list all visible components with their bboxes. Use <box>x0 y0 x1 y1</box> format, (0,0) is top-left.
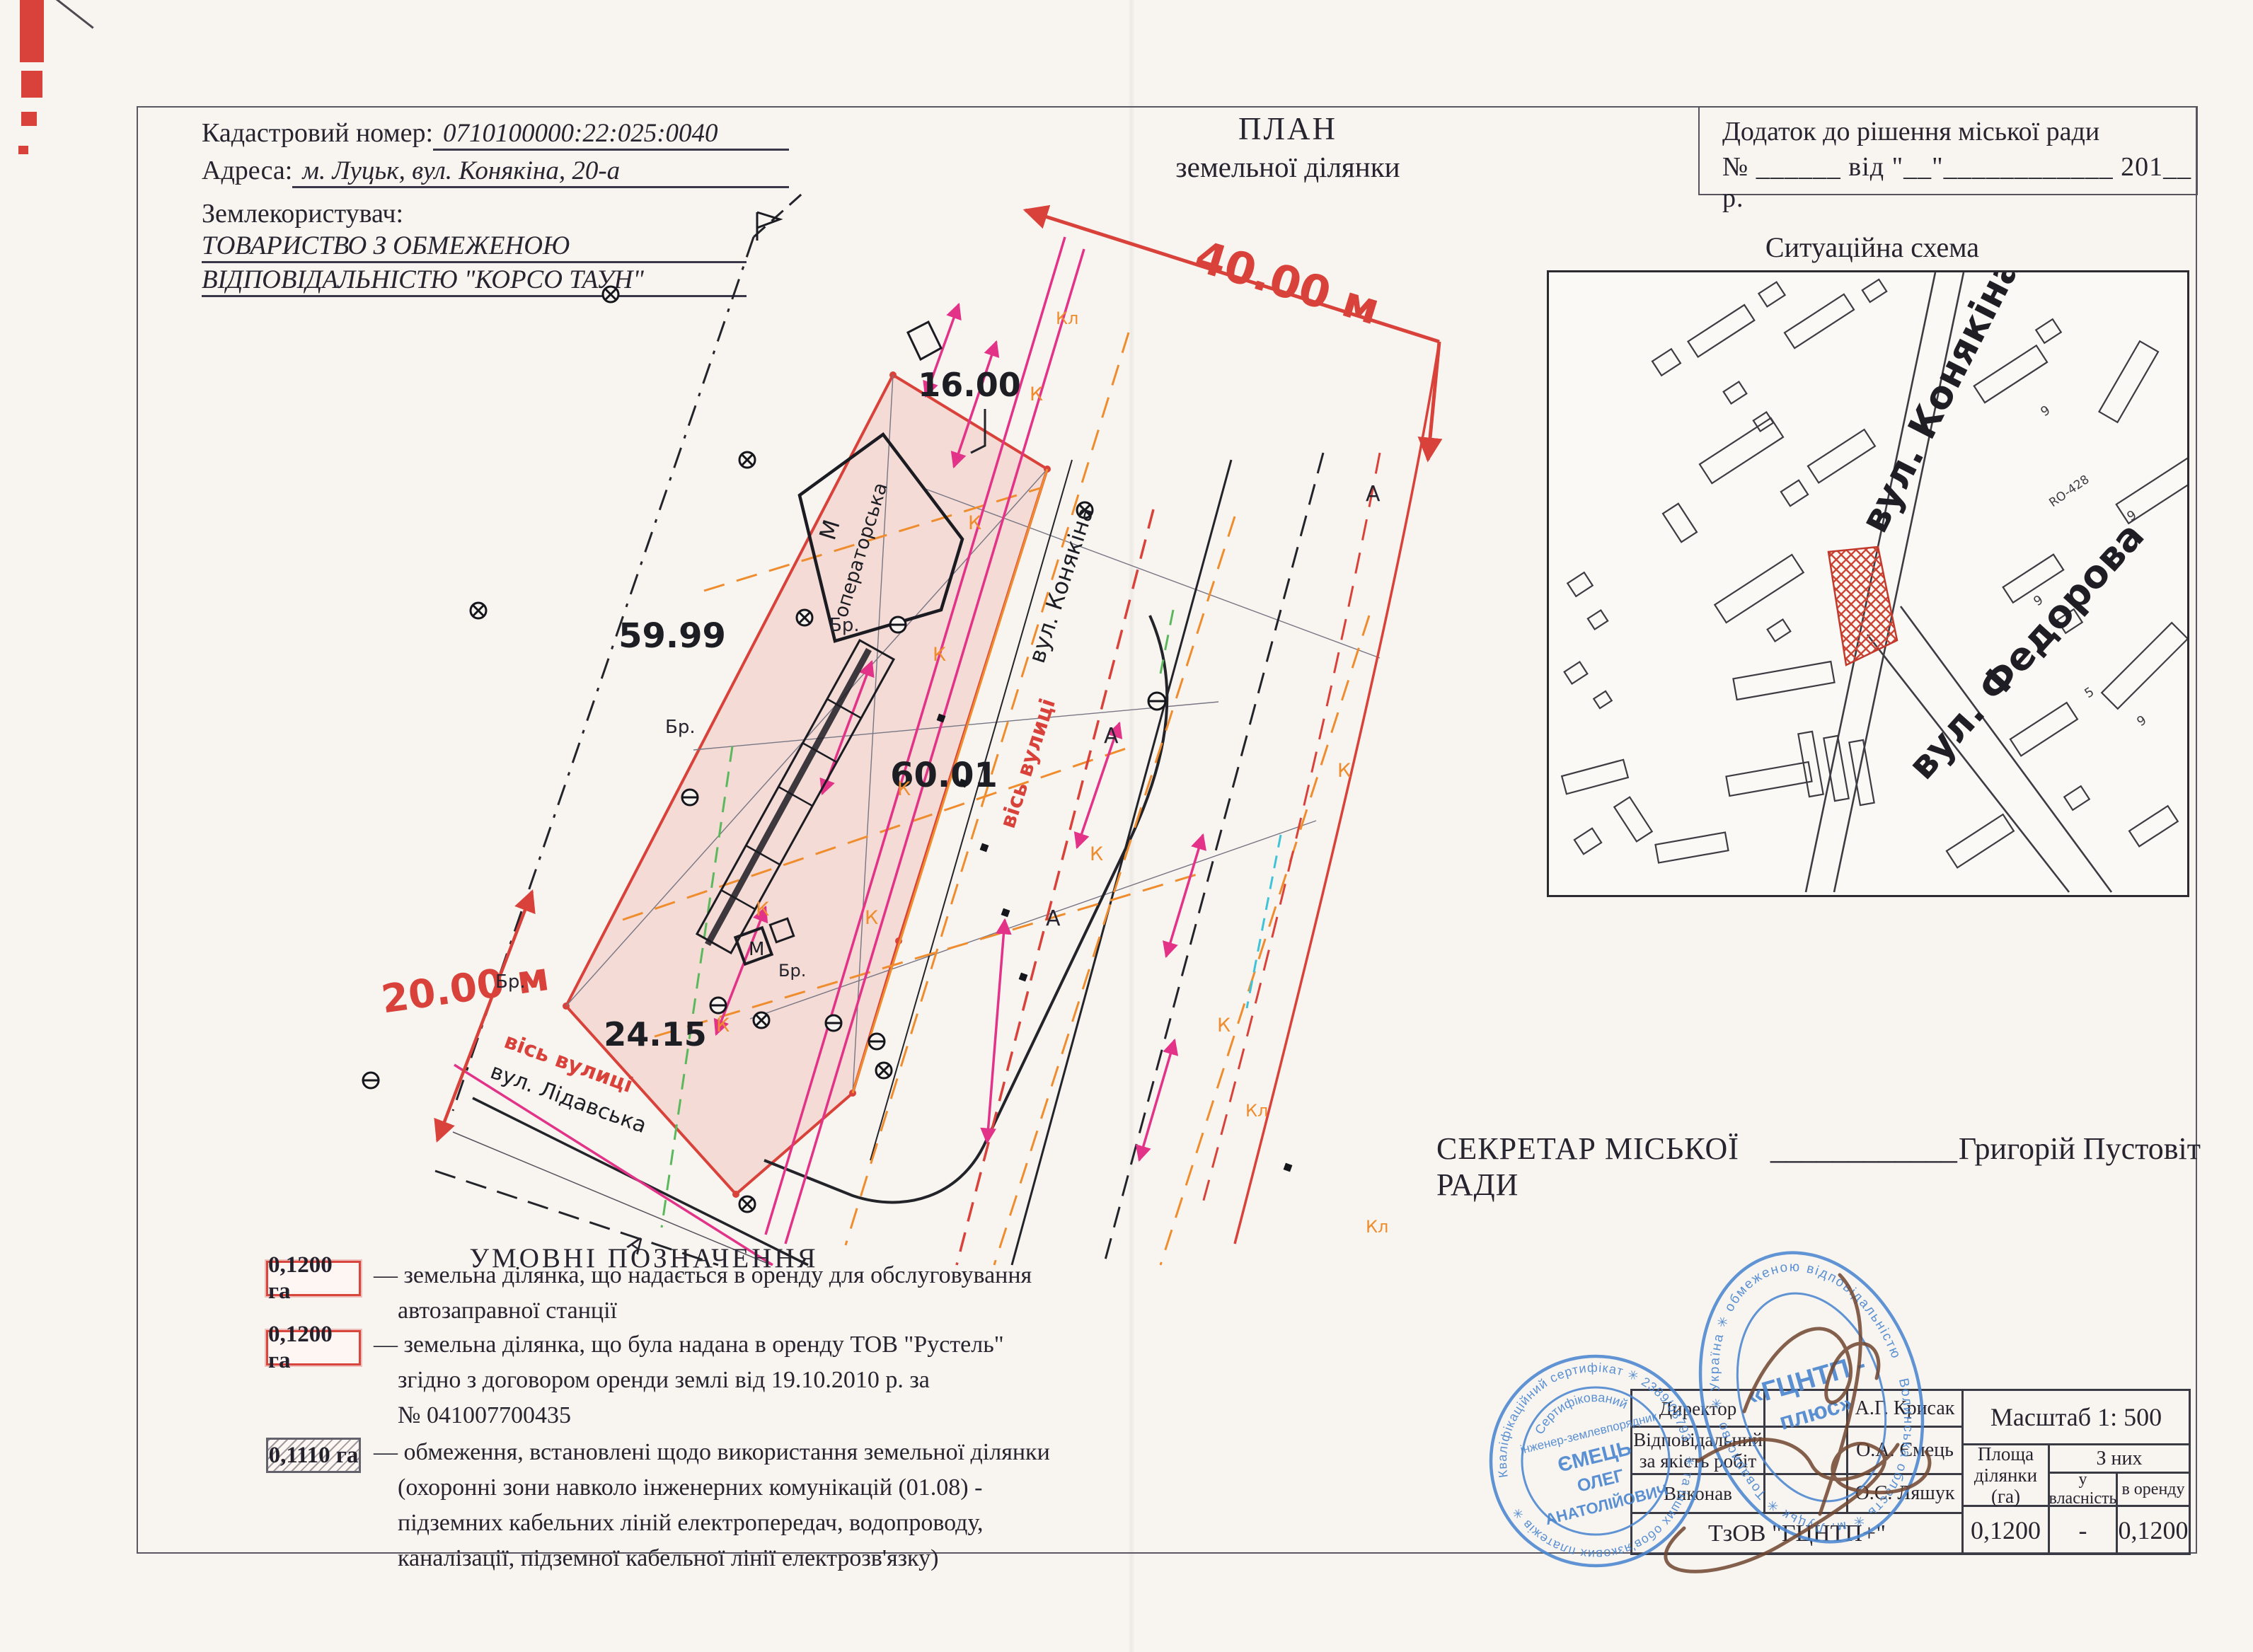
svg-text:К: К <box>716 1015 730 1036</box>
table-org-cell: ТзОВ "ГЦНТП+" <box>1632 1514 1964 1553</box>
legend-item-1-text: — земельна ділянка, що надається в оренд… <box>374 1258 1032 1329</box>
legend-swatch-rustel: 0,1200 га <box>266 1330 361 1365</box>
dimension-40m: 40.00 м <box>1025 210 1439 460</box>
address-line: Адреса: м. Луцьк, вул. Конякіна, 20-а <box>202 155 789 188</box>
svg-text:К: К <box>756 899 769 920</box>
svg-text:К: К <box>1217 1015 1231 1036</box>
svg-text:К: К <box>968 512 981 534</box>
svg-text:К: К <box>1030 383 1043 405</box>
legend-item-2-line-2: згідно з договором оренди землі від 19.1… <box>398 1363 1004 1398</box>
table-row-quality-name: О.А. Ємець <box>1848 1428 1964 1475</box>
legend-item-3-line-3: підземних кабельних ліній електропередач… <box>398 1506 1050 1541</box>
legend-swatch-lease: 0,1200 га <box>266 1261 361 1296</box>
cadastral-number-line: Кадастровий номер: 0710100000:22:025:004… <box>202 117 789 151</box>
scan-edge-mark <box>18 146 28 154</box>
legend-item-3-line-1: — обмеження, встановлені щодо використан… <box>374 1435 1050 1470</box>
page-title-line1: ПЛАН <box>1139 110 1436 147</box>
decision-line1: Додаток до рішення міської ради <box>1722 116 2099 147</box>
page-title-line2: земельної ділянки <box>1139 150 1436 184</box>
scanned-land-plan-document: Кадастровий номер: 0710100000:22:025:004… <box>0 0 2253 1652</box>
legend-item-3-line-4: каналізації, підземної кабельної лінії е… <box>398 1541 1050 1576</box>
svg-text:9: 9 <box>2134 712 2149 729</box>
plan-drawing: 40.00 м 20.00 м 16.00 59.99 60.01 24.15 <box>269 191 1500 1273</box>
br-label-2: Бр. <box>665 717 696 738</box>
svg-text:К: К <box>865 907 878 929</box>
secretary-name: Григорій Пустовіт <box>1959 1131 2201 1167</box>
secretary-underscore: ____________ <box>1770 1131 1957 1167</box>
table-ofthem-header: З них <box>2050 1445 2189 1474</box>
page-title: ПЛАН земельної ділянки <box>1139 110 1436 184</box>
legend-item-2-line-1: — земельна ділянка, що була надана в оре… <box>374 1327 1004 1363</box>
building-m-label-2: М <box>749 939 764 960</box>
legend-item-3-line-2: (охоронні зони навколо інженерних комуні… <box>398 1470 1050 1506</box>
scan-edge-mark <box>21 71 42 98</box>
legend-area-3: 0,1110 га <box>269 1443 359 1469</box>
br-label-1: Бр. <box>829 615 860 636</box>
situation-scheme-map: вул. Конякіна вул. Федорова RO-428 9 9 9… <box>1547 270 2189 897</box>
secretary-label: СЕКРЕТАР МІСЬКОЇ РАДИ <box>1436 1131 1752 1203</box>
a-label-3: А <box>1366 482 1381 507</box>
legend-area-1: 0,1200 га <box>268 1252 359 1305</box>
table-area-value: 0,1200 <box>1964 1507 2050 1553</box>
legend-swatch-restrictions: 0,1110 га <box>266 1438 361 1473</box>
table-signature-cell-1 <box>1765 1391 1848 1428</box>
legend-item-1-line-1: — земельна ділянка, що надається в оренд… <box>374 1258 1032 1293</box>
table-row-quality-label: Відповідальний за якість робіт <box>1632 1428 1765 1475</box>
table-ownership-header: у власність <box>2050 1474 2118 1507</box>
title-block-table: Директор А.Г. Крисак Відповідальний за я… <box>1630 1389 2191 1555</box>
svg-text:К: К <box>897 778 911 800</box>
a-label-1: А <box>1104 724 1119 749</box>
table-signature-cell-3 <box>1765 1475 1848 1514</box>
br-label-4: Бр. <box>495 971 526 993</box>
svg-text:Кл: Кл <box>1245 1101 1268 1121</box>
br-label-3: Бр. <box>778 961 806 981</box>
table-ownership-value: - <box>2050 1507 2118 1553</box>
street-konyakina-label: вул. Конякіна <box>1023 503 1099 666</box>
cadastral-number-value: 0710100000:22:025:0040 <box>433 118 789 151</box>
table-area-header: Площа ділянки (га) <box>1964 1445 2050 1507</box>
inset-ro-label: RO-428 <box>2046 473 2092 510</box>
target-parcel-hatched <box>1828 547 1897 665</box>
scan-fold-mark <box>49 0 93 29</box>
legend-area-2: 0,1200 га <box>268 1322 359 1374</box>
dim-16-label: 16.00 <box>918 366 1021 404</box>
a-label-2: А <box>1046 906 1061 931</box>
dimension-20m: 20.00 м <box>379 891 552 1140</box>
decision-line2: № ______ від "__"____________ 201__ р. <box>1722 151 2196 214</box>
table-row-executor-name: О.С. Ляшук <box>1848 1475 1964 1514</box>
svg-text:К: К <box>1337 760 1351 782</box>
scan-edge-mark <box>20 0 44 62</box>
table-rent-header: в оренду <box>2118 1474 2189 1507</box>
table-row-director-name: А.Г. Крисак <box>1848 1391 1964 1428</box>
cadastral-number-label: Кадастровий номер: <box>202 117 433 149</box>
table-rent-value: 0,1200 <box>2118 1507 2189 1553</box>
council-decision-box: Додаток до рішення міської ради № ______… <box>1698 106 2198 195</box>
legend-item-1-line-2: автозаправної станції <box>398 1293 1032 1329</box>
table-row-executor-label: Виконав <box>1632 1475 1765 1514</box>
svg-text:К: К <box>933 644 946 666</box>
situation-map-svg: вул. Конякіна вул. Федорова RO-428 9 9 9… <box>1549 272 2187 895</box>
svg-text:Кл: Кл <box>1056 308 1078 328</box>
table-scale-cell: Масштаб 1: 500 <box>1964 1391 2189 1445</box>
address-label: Адреса: <box>202 155 292 186</box>
dim-20m-label: 20.00 м <box>379 954 552 1022</box>
table-row-director-label: Директор <box>1632 1391 1765 1428</box>
dim-5999-label: 59.99 <box>618 616 726 656</box>
svg-text:9: 9 <box>2038 403 2053 420</box>
legend-item-2-text: — земельна ділянка, що була надана в оре… <box>374 1327 1004 1433</box>
table-signature-cell-2 <box>1765 1428 1848 1475</box>
inset-street-fedorova-label: вул. Федорова <box>1899 514 2153 788</box>
legend-item-3-text: — обмеження, встановлені щодо використан… <box>374 1435 1050 1576</box>
address-value: м. Луцьк, вул. Конякіна, 20-а <box>292 156 789 188</box>
secretary-signature-line: СЕКРЕТАР МІСЬКОЇ РАДИ ____________ Григо… <box>1436 1131 2201 1203</box>
svg-text:Кл: Кл <box>1366 1217 1388 1237</box>
svg-text:5: 5 <box>2082 684 2097 701</box>
legend-item-2-line-3: № 041007700435 <box>398 1398 1004 1433</box>
situation-scheme-title: Ситуаційна схема <box>1653 231 2092 264</box>
inset-street-konyakina-label: вул. Конякіна <box>1852 272 2030 540</box>
dim-2415-label: 24.15 <box>604 1015 707 1053</box>
dim-40m-label: 40.00 м <box>1189 230 1385 335</box>
scan-edge-mark <box>21 112 37 126</box>
street-axis-label-1: вісь вулиці <box>996 695 1061 831</box>
svg-text:К: К <box>1090 843 1103 865</box>
